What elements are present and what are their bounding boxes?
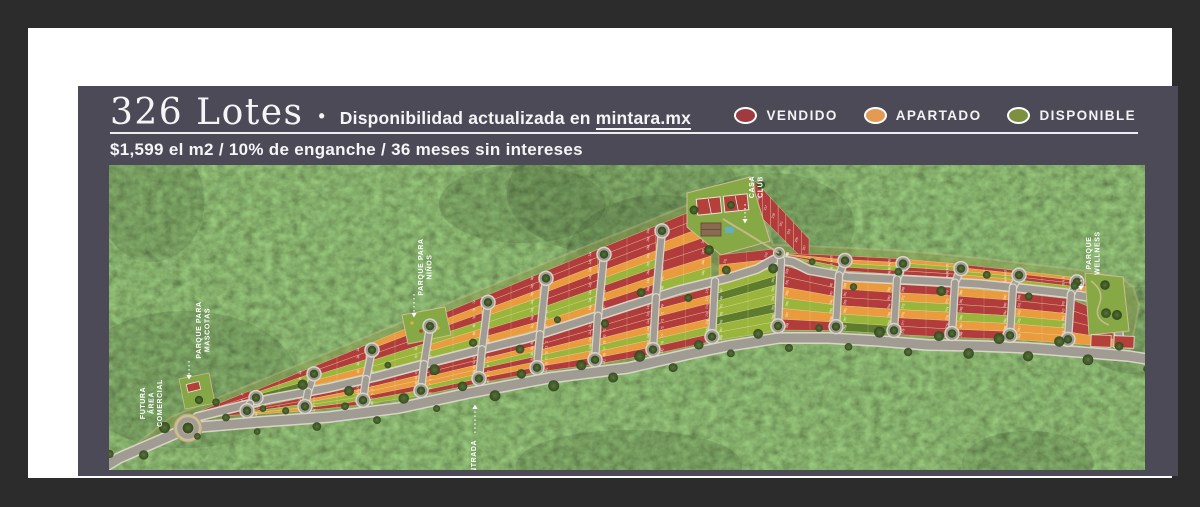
header-divider <box>110 132 1138 134</box>
legend-item-apartado: APARTADO <box>864 107 982 124</box>
svg-text:ÁREA: ÁREA <box>147 392 156 414</box>
svg-text:PARQUE: PARQUE <box>1086 236 1093 269</box>
bullet-separator: • <box>318 106 324 127</box>
flyer-panel: 326 Lotes • Disponibilidad actualizada e… <box>78 86 1178 476</box>
tennis-court <box>696 197 722 215</box>
vendido-swatch-icon <box>734 107 757 124</box>
disponible-swatch-icon <box>1007 107 1030 124</box>
svg-text:WELLNESS: WELLNESS <box>1095 231 1102 275</box>
status-legend: VENDIDOAPARTADODISPONIBLE <box>734 107 1136 124</box>
svg-text:PARQUE PARA: PARQUE PARA <box>418 238 425 295</box>
white-matting-frame: 326 Lotes • Disponibilidad actualizada e… <box>28 28 1172 478</box>
legend-label: APARTADO <box>896 108 982 123</box>
availability-subtitle: Disponibilidad actualizada en mintara.mx <box>340 108 691 129</box>
legend-label: VENDIDO <box>766 108 837 123</box>
site-map: 1234567891011121314151617181920212223242… <box>109 165 1145 470</box>
pool <box>725 227 734 233</box>
header: 326 Lotes • Disponibilidad actualizada e… <box>110 92 691 133</box>
svg-text:MASCOTAS: MASCOTAS <box>205 308 212 352</box>
pricing-line: $1,599 el m2 / 10% de enganche / 36 mese… <box>110 140 583 160</box>
legend-item-vendido: VENDIDO <box>734 107 837 124</box>
svg-text:COMERCIAL: COMERCIAL <box>157 379 164 427</box>
svg-text:NIÑOS: NIÑOS <box>425 254 434 279</box>
legend-item-disponible: DISPONIBLE <box>1007 107 1136 124</box>
page-title: 326 Lotes <box>110 92 303 133</box>
apartado-swatch-icon <box>864 107 887 124</box>
page-background: 326 Lotes • Disponibilidad actualizada e… <box>0 0 1200 507</box>
legend-label: DISPONIBLE <box>1039 108 1136 123</box>
svg-text:CASA: CASA <box>749 176 756 198</box>
svg-text:ENTRADA: ENTRADA <box>471 440 478 470</box>
svg-text:FUTURA: FUTURA <box>140 387 147 419</box>
sport-court <box>1091 335 1111 348</box>
mintara-link[interactable]: mintara.mx <box>596 108 691 130</box>
masterplan-aerial-map: 1234567891011121314151617181920212223242… <box>109 165 1145 470</box>
svg-text:CLUB: CLUB <box>758 176 765 198</box>
svg-text:PARQUE PARA: PARQUE PARA <box>196 301 203 358</box>
